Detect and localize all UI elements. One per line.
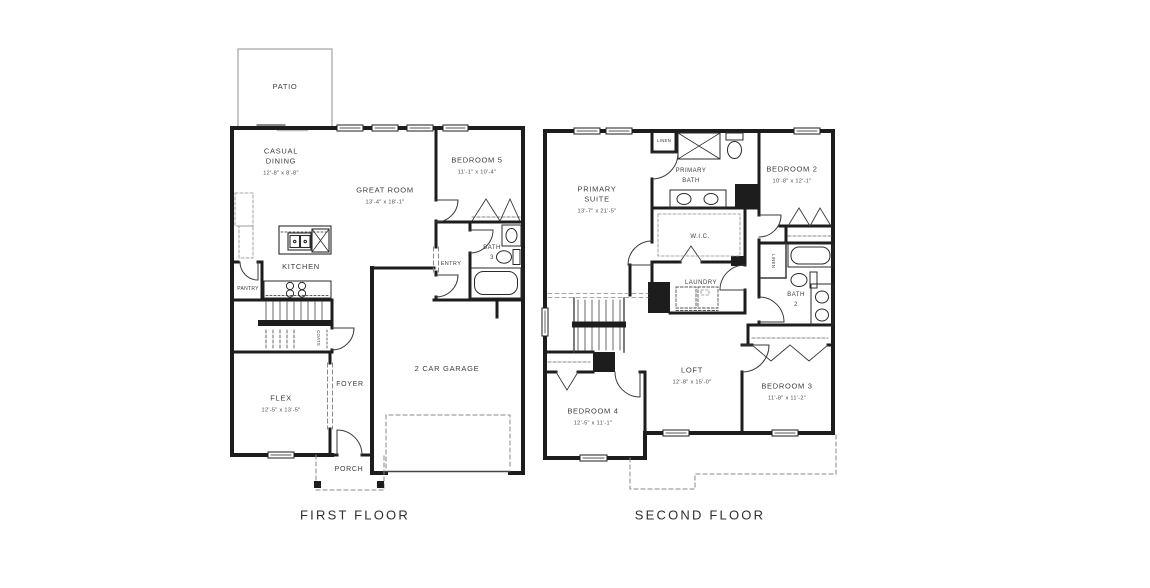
window-icon	[407, 125, 433, 131]
window-icon	[443, 125, 468, 131]
dishwasher-icon	[312, 229, 329, 252]
floorplan-drawing	[0, 0, 1150, 588]
toilet-icon	[791, 272, 817, 288]
room-label-foyer: FOYER	[336, 380, 364, 390]
garage-door-icon	[386, 415, 510, 472]
floorplan-page: PATIO CASUAL DINING 12'-8" x 8'-8" GREAT…	[0, 0, 1150, 588]
door-arc	[436, 275, 458, 297]
door-arc	[337, 430, 362, 455]
shower-icon	[678, 133, 720, 159]
room-label-bath3: BATH 3	[483, 243, 501, 263]
room-label-bedroom4: BEDROOM 4 12'-5" x 11'-1"	[567, 406, 618, 428]
first-floor-title: FIRST FLOOR	[300, 508, 410, 523]
porch-post	[377, 481, 384, 488]
window-icon	[794, 128, 820, 134]
door-arc	[742, 345, 769, 372]
room-label-garage: 2 CAR GARAGE	[415, 364, 480, 374]
double-sink-icon	[670, 190, 726, 208]
window-icon	[772, 430, 798, 436]
room-label-bedroom3: BEDROOM 3 11'-8" x 11'-2"	[761, 381, 812, 403]
window-icon	[574, 128, 600, 134]
washer-dryer-icon	[676, 287, 718, 311]
window-icon	[606, 128, 632, 134]
bifold-door-icon	[680, 246, 702, 262]
window-icon	[268, 452, 294, 458]
room-label-pantry: PANTRY	[237, 284, 259, 294]
room-label-coats: COATS	[313, 330, 323, 346]
bifold-door-icon	[472, 199, 520, 221]
first-floor-plan	[232, 49, 523, 490]
room-label-kitchen: KITCHEN	[282, 262, 320, 272]
door-arc	[436, 200, 458, 222]
doors-1f	[240, 200, 493, 455]
sink-icon	[502, 225, 521, 246]
stove-icon	[264, 281, 331, 298]
room-label-porch: PORCH	[335, 465, 364, 475]
door-arc	[628, 241, 652, 265]
room-label-linen-top: LINEN	[657, 136, 671, 146]
door-arc	[759, 297, 784, 322]
room-label-linen-side: LINEN	[768, 254, 778, 268]
roofline-dashed	[630, 433, 836, 489]
toilet-icon	[726, 133, 743, 159]
room-label-loft: LOFT 12'-8" x 15'-0"	[673, 365, 712, 387]
window-icon	[580, 455, 607, 461]
porch-post	[314, 481, 321, 488]
bath2-fixtures	[788, 244, 833, 326]
window-icon	[542, 308, 548, 336]
door-arc	[615, 372, 640, 397]
bifold-door-icon	[752, 345, 828, 361]
window-icon	[337, 125, 363, 131]
second-floor-title: SECOND FLOOR	[635, 508, 765, 523]
room-label-entry: ENTRY	[441, 259, 462, 269]
room-label-casual-dining: CASUAL DINING 12'-8" x 8'-8"	[254, 146, 308, 178]
door-arc	[240, 262, 258, 280]
room-label-patio: PATIO	[273, 82, 298, 92]
door-arc	[332, 328, 354, 350]
kitchen-island-icon	[279, 226, 331, 254]
window-icon	[663, 430, 689, 436]
room-label-great-room: GREAT ROOM 13'-4" x 18'-1"	[356, 185, 414, 207]
door-arc	[720, 265, 745, 290]
room-label-primary-bath: PRIMARY BATH	[669, 166, 713, 186]
stairs-2f	[548, 294, 648, 353]
closet-bedroom5	[472, 199, 520, 221]
bifold-door-icon	[556, 372, 578, 390]
room-label-bedroom5: BEDROOM 5 11'-1" x 10'-4"	[451, 155, 502, 177]
door-arc	[759, 215, 781, 237]
kitchen-sink-icon	[288, 233, 311, 250]
room-label-laundry: LAUNDRY	[685, 278, 717, 288]
room-label-wic: W.I.C.	[690, 232, 709, 242]
room-label-bedroom2: BEDROOM 2 10'-8" x 12'-1"	[766, 164, 817, 186]
room-label-primary-suite: PRIMARY SUITE 13'-7" x 21'-5"	[571, 184, 623, 216]
room-label-bath2: BATH 2	[787, 290, 805, 310]
bathtub-icon	[471, 268, 521, 298]
bifold-door-icon	[788, 208, 831, 226]
bathtub-icon	[788, 244, 833, 267]
double-sink-icon	[811, 284, 833, 326]
window-icon	[372, 125, 398, 131]
room-label-flex: FLEX 12'-5" x 13'-5"	[262, 393, 301, 415]
